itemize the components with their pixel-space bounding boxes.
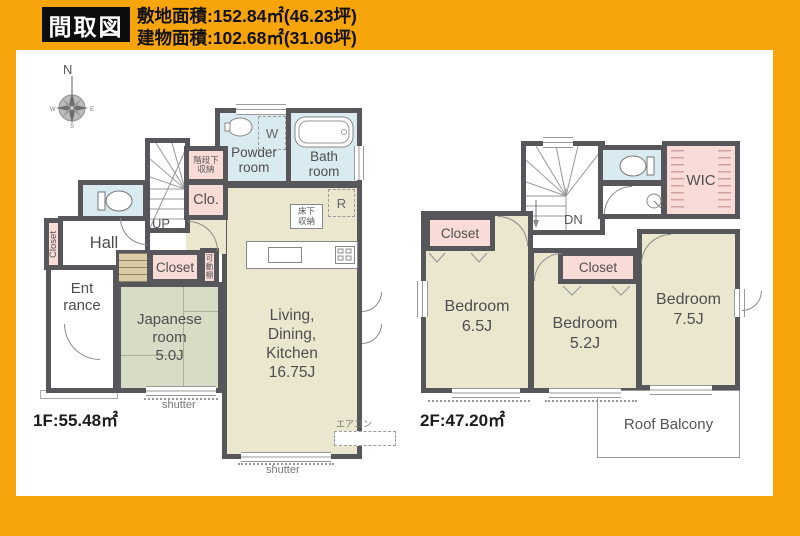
window bbox=[241, 452, 331, 462]
window bbox=[417, 281, 428, 317]
window bbox=[146, 386, 216, 396]
round-sink-icon bbox=[645, 192, 663, 210]
stairs-2f-icon bbox=[526, 146, 600, 230]
washer-box: W bbox=[258, 116, 286, 150]
window bbox=[452, 388, 520, 398]
closet-hall: Closet bbox=[44, 218, 63, 270]
window bbox=[650, 385, 712, 395]
closet-japanese-room: Closet bbox=[148, 250, 202, 284]
aircon-box bbox=[334, 431, 396, 446]
bifold-door-icon bbox=[428, 252, 492, 263]
plan-title-badge: 間取図 bbox=[42, 7, 130, 42]
compass-north-label: N bbox=[63, 62, 72, 77]
washbasin-icon bbox=[224, 116, 254, 138]
up-label: UP bbox=[152, 216, 170, 231]
stairs-2f bbox=[521, 141, 605, 235]
closet-hall-label: Closet bbox=[48, 231, 59, 258]
dn-label: DN bbox=[564, 212, 583, 227]
movable-shelf: 可動棚 bbox=[200, 248, 219, 286]
closet-bedroom-52: Closet bbox=[558, 251, 638, 284]
shutter-line bbox=[545, 400, 637, 402]
japanese-room-label: Japanese room 5.0J bbox=[121, 287, 218, 388]
stove-icon bbox=[335, 246, 355, 264]
room-wic: WIC bbox=[662, 141, 740, 219]
floor-plan-page: 間取図 敷地面積:152.84㎡(46.23坪) 建物面積:102.68㎡(31… bbox=[0, 0, 800, 536]
svg-text:E: E bbox=[90, 107, 94, 113]
bifold-door-icon bbox=[562, 285, 634, 296]
room-bath: Bath room bbox=[286, 108, 362, 186]
window bbox=[549, 388, 621, 398]
entrance-step-storage bbox=[116, 250, 150, 286]
window bbox=[354, 146, 364, 180]
toilet-icon-2f bbox=[617, 154, 655, 178]
shutter-label-ldk: shutter bbox=[266, 464, 300, 476]
svg-text:S: S bbox=[70, 124, 74, 130]
entrance-label: Ent rance bbox=[51, 280, 113, 314]
plan-title: 間取図 bbox=[49, 8, 124, 42]
kitchen-sink-icon bbox=[268, 247, 302, 263]
under-stairs-storage: 階段下 収納 bbox=[184, 146, 228, 184]
fridge-box: R bbox=[328, 189, 355, 217]
shutter-label-jp: shutter bbox=[162, 399, 196, 411]
underfloor-storage-box: 床下 収納 bbox=[290, 204, 323, 229]
closet-bedroom-65: Closet bbox=[425, 215, 495, 251]
wic-label: WIC bbox=[667, 146, 735, 214]
floor2-area-label: 2F:47.20㎡ bbox=[420, 406, 505, 431]
movable-shelf-label: 可動棚 bbox=[204, 254, 215, 280]
shutter-line bbox=[428, 400, 530, 402]
svg-text:W: W bbox=[50, 107, 56, 113]
toilet-icon-1f bbox=[97, 189, 135, 213]
compass-rose-icon: N W E S bbox=[50, 64, 96, 130]
window bbox=[543, 137, 573, 148]
building-area-text: 建物面積:102.68㎡(31.06坪) bbox=[137, 25, 357, 50]
closet-clo-1f: Clo. bbox=[184, 180, 228, 220]
room-toilet-2f bbox=[598, 145, 666, 185]
bath-room-label: Bath room bbox=[291, 113, 357, 181]
room-japanese: Japanese room 5.0J bbox=[116, 282, 223, 393]
aircon-label: エアコン bbox=[336, 420, 372, 430]
window bbox=[236, 104, 286, 115]
floor1-area-label: 1F:55.48㎡ bbox=[33, 406, 118, 431]
